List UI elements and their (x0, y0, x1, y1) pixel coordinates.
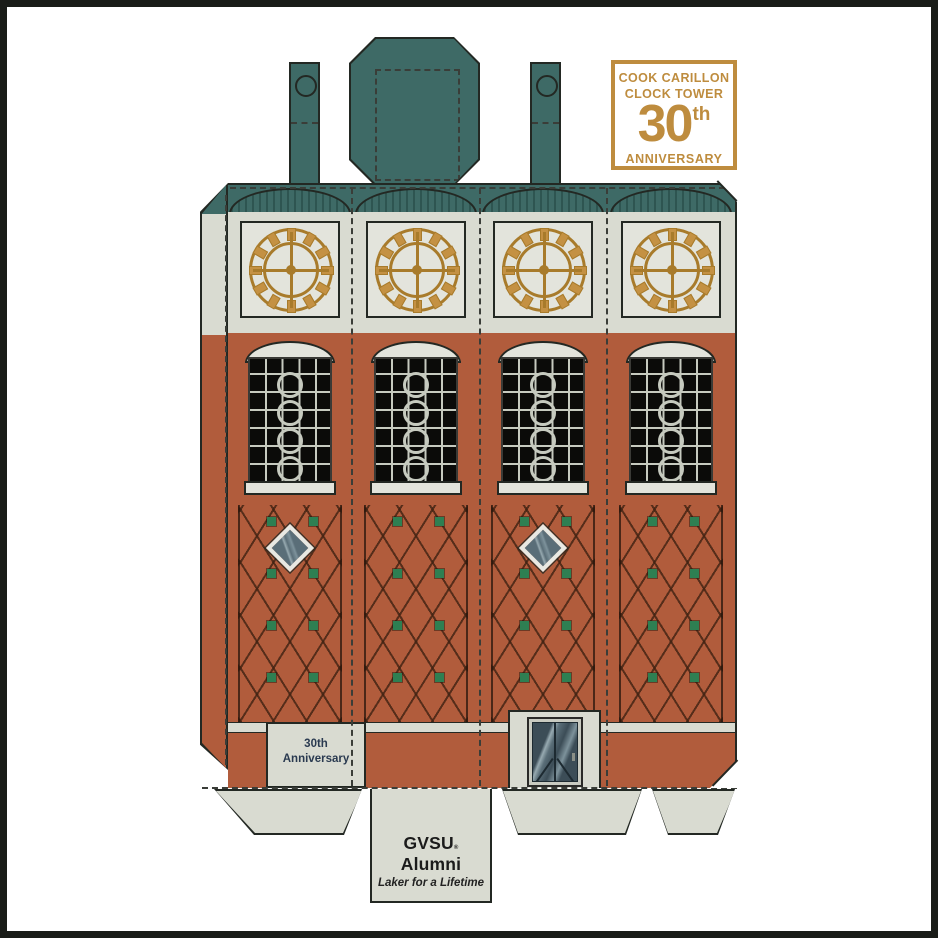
window-sill (497, 481, 589, 495)
window-sill (370, 481, 462, 495)
sheet-cut-edge-right (735, 183, 737, 765)
brand-wordmark: GVSU® Alumni (372, 833, 490, 875)
clock-center-pin (412, 265, 422, 275)
window-circle-ornament (403, 372, 429, 398)
brick-stud (267, 673, 276, 682)
brand-tagline: Laker for a Lifetime (372, 877, 490, 889)
bottom-glue-tab-fill (502, 791, 642, 833)
entrance-door-block (508, 710, 601, 788)
panel-fold-line (351, 188, 353, 786)
anniversary-label-line1: 30th (268, 737, 364, 752)
window-sill (244, 481, 336, 495)
brick-lattice-panel (364, 505, 468, 722)
bottom-glue-tab-fill (652, 791, 735, 833)
left-tab-brick-strip (202, 335, 226, 768)
left-tab-cream-strip (202, 214, 226, 335)
panel-fold-line (479, 188, 481, 786)
badge-title-line1: COOK CARILLON (615, 71, 733, 87)
brick-stud (267, 569, 276, 578)
window-circle-ornament (277, 400, 303, 426)
brick-stud (648, 569, 657, 578)
brick-stud (520, 517, 529, 526)
brick-stud (435, 517, 444, 526)
brick-stud (435, 569, 444, 578)
roof-arch (355, 188, 477, 212)
window-circle-ornament (277, 372, 303, 398)
roof-top-flap (349, 37, 480, 186)
bottom-glue-tab (500, 789, 644, 835)
window-circle-ornament (403, 428, 429, 454)
window-circle-ornament (658, 400, 684, 426)
clock-panel (493, 221, 593, 318)
panel-fold-line (606, 188, 608, 786)
brick-stud (690, 569, 699, 578)
brick-stud (309, 673, 318, 682)
brick-stud (520, 569, 529, 578)
brick-stud (562, 673, 571, 682)
brick-stud (520, 673, 529, 682)
brick-stud (309, 569, 318, 578)
window-circle-ornament (403, 456, 429, 482)
door-brace (557, 758, 575, 782)
clock-face-icon (630, 228, 714, 312)
door-frame (527, 717, 583, 787)
base-fold-line (202, 787, 737, 789)
brick-stud (690, 517, 699, 526)
anniversary-label-line2: Anniversary (268, 752, 364, 767)
left-glue-tab-fill (202, 185, 226, 768)
anniversary-badge: COOK CARILLON CLOCK TOWER 30 th ANNIVERS… (611, 60, 737, 170)
brick-stud (393, 673, 402, 682)
window-circle-ornament (403, 400, 429, 426)
window-circle-ornament (530, 456, 556, 482)
clock-panel (366, 221, 466, 318)
punch-hole-icon (536, 75, 558, 97)
roof-arch (229, 188, 351, 212)
brick-stud (690, 621, 699, 630)
belfry-window (374, 357, 458, 483)
brick-stud (690, 673, 699, 682)
badge-number-row: 30 th (615, 103, 733, 149)
badge-number: 30 (638, 103, 692, 146)
belfry-window (248, 357, 332, 483)
brick-stud (648, 517, 657, 526)
roof-post-right (530, 62, 561, 185)
brick-stud (520, 621, 529, 630)
brick-stud (562, 621, 571, 630)
clock-face-icon (502, 228, 586, 312)
brick-stud (393, 517, 402, 526)
logo-tab: GVSU® Alumni Laker for a Lifetime (370, 789, 492, 903)
entrance-door-icon (532, 722, 578, 782)
clock-center-pin (286, 265, 296, 275)
left-tab-fold-line (225, 195, 227, 765)
belfry-window (501, 357, 585, 483)
window-circle-ornament (658, 428, 684, 454)
badge-title-line3: ANNIVERSARY (615, 152, 733, 166)
door-handle (572, 753, 575, 761)
brick-stud (435, 621, 444, 630)
brick-stud (562, 517, 571, 526)
bottom-glue-tab (650, 789, 737, 835)
brick-stud (435, 673, 444, 682)
clock-center-pin (667, 265, 677, 275)
belfry-window (629, 357, 713, 483)
brick-stud (309, 517, 318, 526)
brick-stud (393, 569, 402, 578)
badge-number-suffix: th (692, 104, 710, 126)
window-circle-ornament (530, 372, 556, 398)
bottom-glue-tab-fill (216, 791, 362, 833)
window-circle-ornament (658, 456, 684, 482)
brick-stud (648, 621, 657, 630)
roof-post-left (289, 62, 320, 185)
clock-panel (240, 221, 340, 318)
post-fold-line (532, 122, 559, 124)
roof-arch (610, 188, 732, 212)
window-circle-ornament (277, 456, 303, 482)
registered-mark-icon: ® (454, 845, 459, 851)
clock-center-pin (539, 265, 549, 275)
window-circle-ornament (658, 372, 684, 398)
brick-stud (267, 621, 276, 630)
roof-fold-line (230, 187, 735, 189)
brick-stud (309, 621, 318, 630)
brick-stud (648, 673, 657, 682)
clock-panel (621, 221, 721, 318)
window-circle-ornament (277, 428, 303, 454)
door-brace (535, 758, 553, 782)
brick-stud (562, 569, 571, 578)
brick-stud (267, 517, 276, 526)
window-circle-ornament (530, 400, 556, 426)
brick-lattice-panel (619, 505, 723, 722)
brick-body (228, 333, 737, 788)
roof-top-fold-lines (375, 69, 460, 181)
clock-face-icon (249, 228, 333, 312)
papercraft-sheet: COOK CARILLON CLOCK TOWER 30 th ANNIVERS… (0, 0, 938, 938)
left-glue-tab (200, 183, 228, 770)
bottom-glue-tab (214, 789, 364, 835)
window-sill (625, 481, 717, 495)
brick-stud (393, 621, 402, 630)
brand-first: GVSU (403, 833, 453, 853)
roof-top-flap-fill (351, 39, 478, 184)
clock-band (228, 212, 737, 333)
roof-arch (482, 188, 604, 212)
window-circle-ornament (530, 428, 556, 454)
left-tab-roof-strip (202, 185, 226, 214)
punch-hole-icon (295, 75, 317, 97)
post-fold-line (291, 122, 318, 124)
brand-second: Alumni (401, 854, 462, 874)
clock-face-icon (375, 228, 459, 312)
door-split-line (554, 723, 556, 781)
